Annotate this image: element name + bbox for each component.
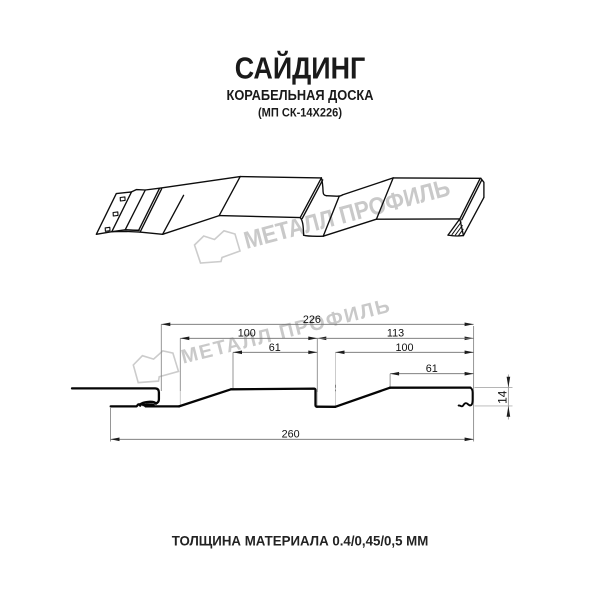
svg-text:ТОЛЩИНА МАТЕРИАЛА 0.4/0,45/0,5: ТОЛЩИНА МАТЕРИАЛА 0.4/0,45/0,5 ММ <box>172 532 429 548</box>
svg-text:260: 260 <box>282 428 300 440</box>
svg-text:61: 61 <box>269 342 281 354</box>
svg-text:100: 100 <box>238 328 256 340</box>
svg-text:113: 113 <box>387 328 404 340</box>
svg-text:61: 61 <box>426 363 438 375</box>
svg-text:КОРАБЕЛЬНАЯ ДОСКА: КОРАБЕЛЬНАЯ ДОСКА <box>227 88 374 104</box>
svg-text:САЙДИНГ: САЙДИНГ <box>235 49 366 85</box>
svg-text:226: 226 <box>303 314 321 326</box>
svg-text:МЕТАЛЛ ПРОФИЛЬ: МЕТАЛЛ ПРОФИЛЬ <box>241 175 453 255</box>
svg-text:14: 14 <box>495 390 509 404</box>
svg-text:МЕТАЛЛ ПРОФИЛЬ: МЕТАЛЛ ПРОФИЛЬ <box>179 295 392 368</box>
svg-text:(МП СК-14Х226): (МП СК-14Х226) <box>258 106 342 120</box>
svg-text:100: 100 <box>395 342 413 354</box>
